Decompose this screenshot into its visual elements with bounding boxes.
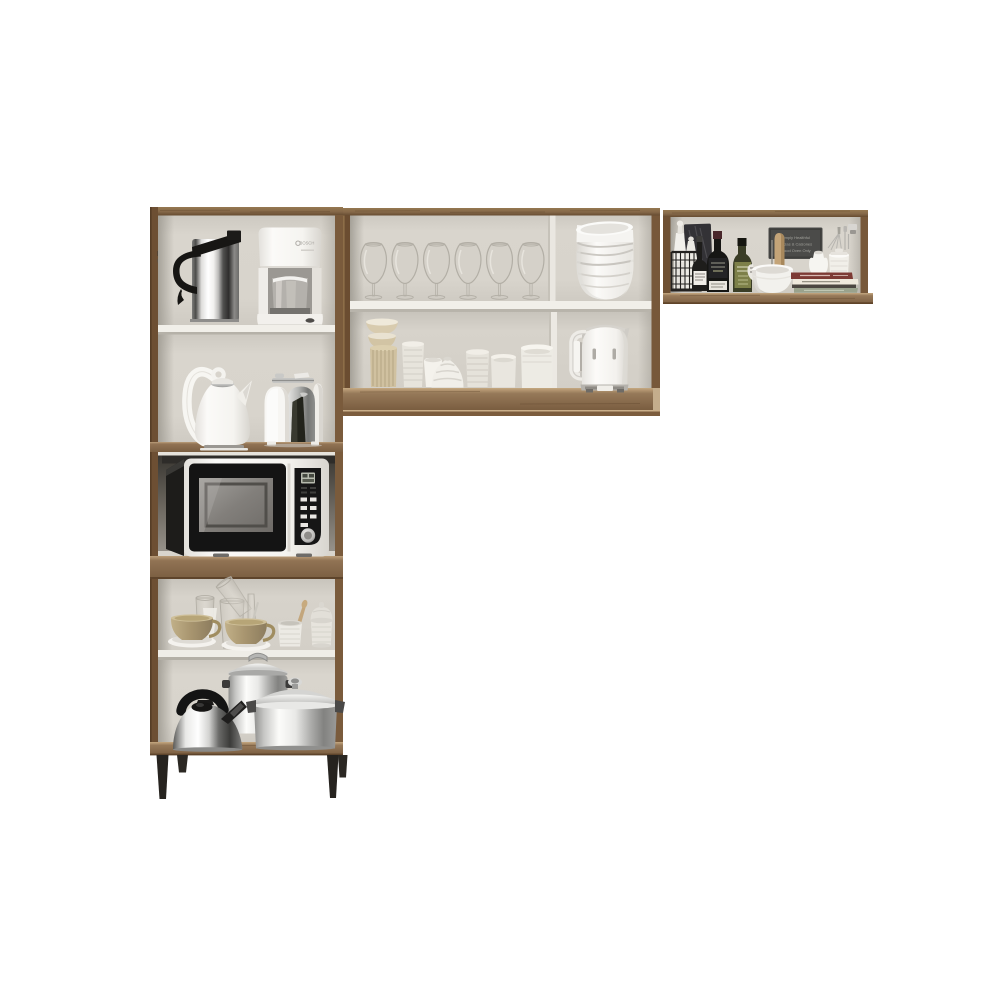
svg-text:Simply Healthful: Simply Healthful [781, 235, 810, 240]
svg-text:BOSCH: BOSCH [300, 241, 315, 246]
svg-text:Wood Oven Only: Wood Oven Only [780, 248, 810, 253]
